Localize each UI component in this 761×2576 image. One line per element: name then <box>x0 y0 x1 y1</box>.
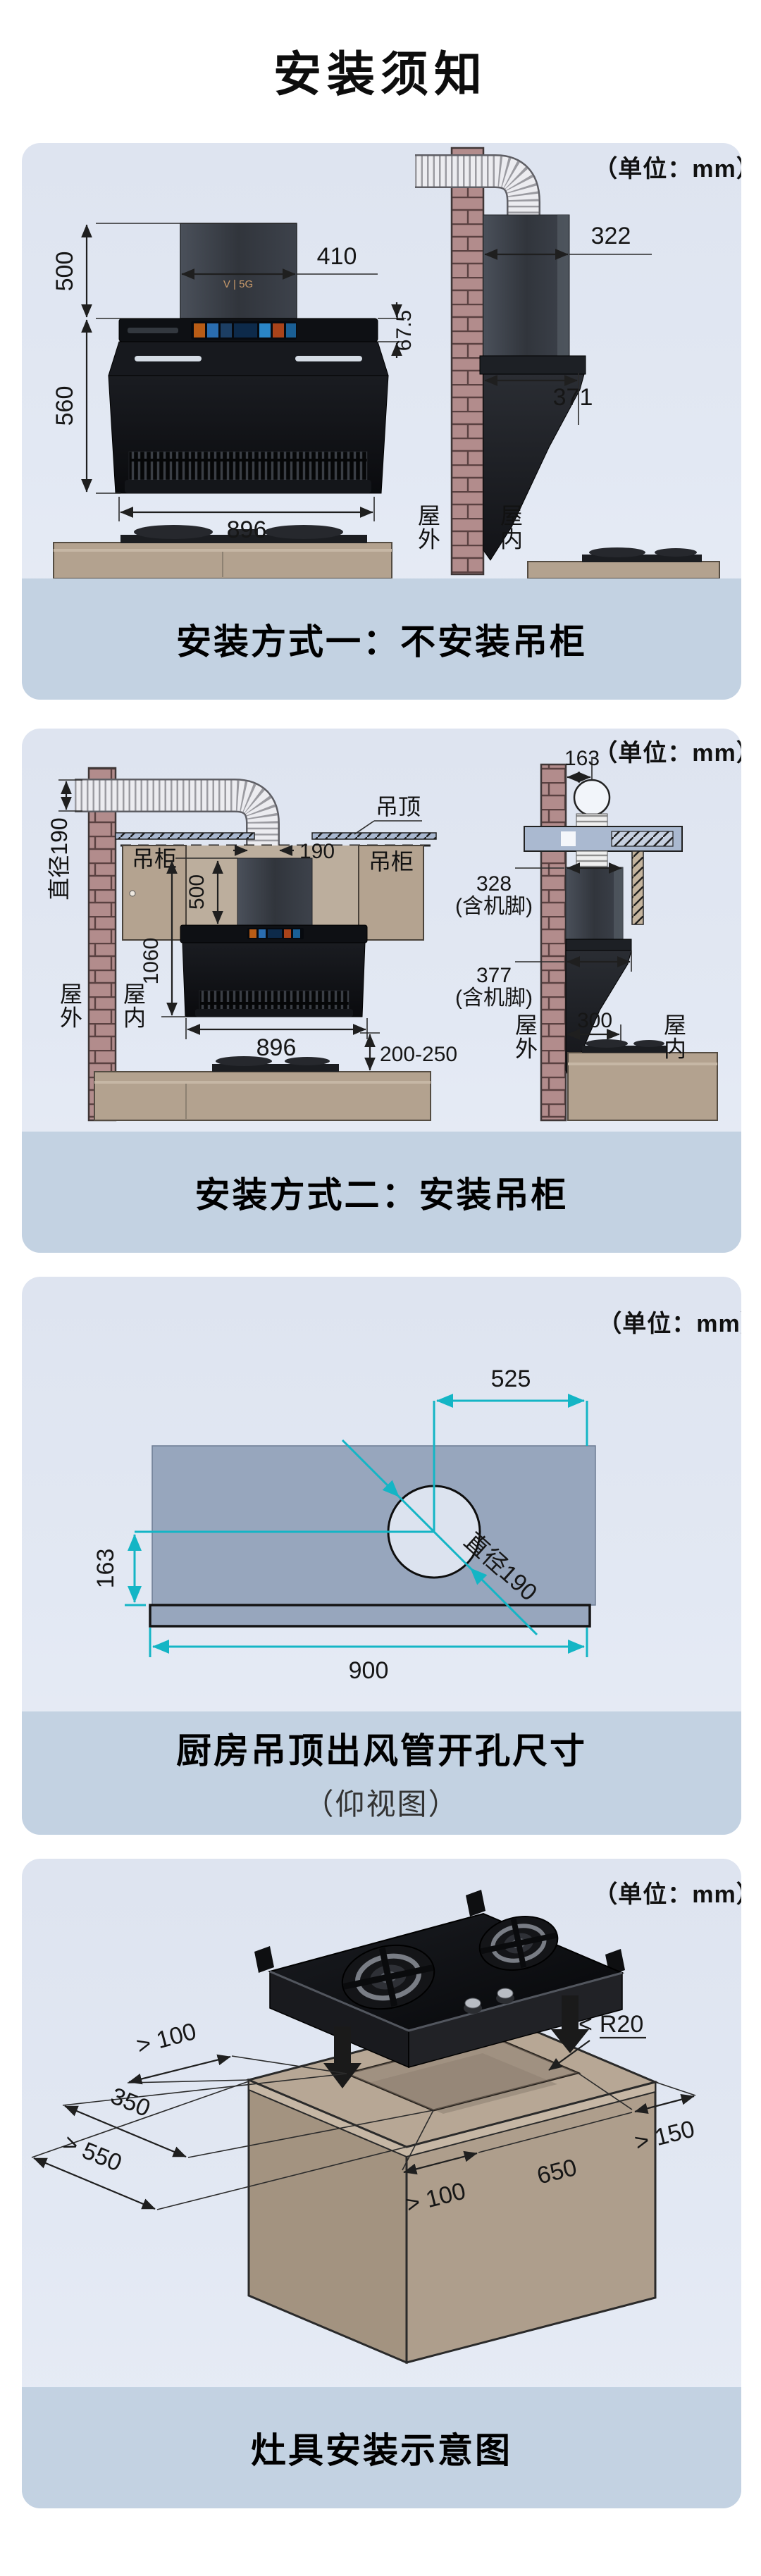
chimney-side <box>483 215 569 356</box>
counter-side <box>528 562 719 578</box>
hood-bottom-lip <box>125 480 371 493</box>
caption-text: 安装方式二：安装吊柜 <box>195 1167 569 1218</box>
dim-500: 500 <box>185 874 209 910</box>
hood-grille-slats <box>199 991 349 1010</box>
display-icon <box>286 323 296 338</box>
panel1-diagram: （单位：mm） V | 5G <box>22 143 741 578</box>
display-clock <box>268 929 282 938</box>
stove-bracket <box>466 1890 485 1916</box>
r20-lt: < <box>579 2011 593 2038</box>
display-icon <box>207 323 218 338</box>
label-outside: 屋外 <box>515 1013 538 1062</box>
display-icon <box>273 323 284 338</box>
dim-371: 371 <box>553 384 593 411</box>
chimney-highlight <box>557 215 569 356</box>
dim-525: 525 <box>491 1366 531 1392</box>
cabinet-knob <box>130 891 135 896</box>
hood-logo: V | 5G <box>223 278 253 290</box>
hood-shelf-side <box>566 939 631 950</box>
dim-r20: <R20 <box>579 2011 643 2038</box>
stove-burner <box>633 1040 664 1047</box>
dim-560: 560 <box>51 386 78 426</box>
duct-corrugated <box>576 814 607 826</box>
stove-burner <box>285 1057 330 1065</box>
dim-322: 322 <box>591 223 631 249</box>
label-outside: 屋外 <box>418 503 440 552</box>
display-icon <box>284 929 291 938</box>
panel-install-no-cabinet: （单位：mm） V | 5G <box>22 143 741 700</box>
hood-grille-slats <box>129 452 367 480</box>
dim-line <box>129 2057 230 2082</box>
slab-hatch-lines <box>612 831 673 846</box>
panel2-diagram: （单位：mm） 直径190 吊顶 吊柜 <box>22 729 741 1132</box>
dim-300: 300 <box>577 1009 612 1032</box>
panel1-caption: 安装方式一：不安装吊柜 <box>22 578 741 700</box>
dim-cutout-depth: 350 <box>107 2083 154 2122</box>
caption-text: 安装方式一：不安装吊柜 <box>176 614 587 664</box>
hood-led-strip <box>295 356 362 361</box>
stove-burner <box>216 1056 272 1066</box>
counter <box>94 1072 431 1120</box>
panel4-caption: 灶具安装示意图 <box>22 2387 741 2508</box>
label-inside: 屋内 <box>500 503 523 552</box>
panel4-diagram: （单位：mm） <box>22 1859 741 2389</box>
ceiling-hatch <box>116 833 254 839</box>
stove-burner <box>586 1039 628 1048</box>
dim-163: 163 <box>92 1549 119 1589</box>
dim-377: 377 <box>476 964 512 987</box>
label-inside: 屋内 <box>123 982 146 1031</box>
duct-circle <box>574 780 610 815</box>
hood-bottom-lip <box>195 1009 353 1017</box>
dim-back-clearance: > 100 <box>134 2018 199 2060</box>
dim-900: 900 <box>349 1657 389 1684</box>
display-icon <box>194 323 205 338</box>
slab-opening <box>561 831 576 846</box>
dim-190: 190 <box>299 840 335 863</box>
ceiling-hatch <box>312 833 436 839</box>
leader-line <box>354 821 374 834</box>
dim-896: 896 <box>227 516 267 543</box>
label-inside: 屋内 <box>664 1013 686 1062</box>
hood-brand-strip <box>128 328 178 333</box>
board-hatch <box>632 851 643 924</box>
dim-377-note: (含机脚) <box>455 986 533 1010</box>
page-title: 安装须知 <box>0 35 761 105</box>
display-icon <box>221 323 232 338</box>
display-icon <box>249 929 256 938</box>
unit-note: （单位：mm） <box>598 1310 741 1337</box>
caption-text: 灶具安装示意图 <box>251 2422 512 2473</box>
stove-burner <box>655 548 697 557</box>
hood-chimney <box>237 858 312 925</box>
panel-stove-install: （单位：mm） <box>22 1859 741 2508</box>
display-icon <box>293 929 300 938</box>
with-cabinet-side-view: 163 328 (含机脚) 377 (含机脚) 3 <box>455 747 717 1120</box>
caption-subtext: （仰视图） <box>304 1781 459 1823</box>
panel2-caption: 安装方式二：安装吊柜 <box>22 1132 741 1253</box>
dim-diameter-190: 直径190 <box>47 817 72 900</box>
dim-328-note: (含机脚) <box>455 895 533 918</box>
label-ceiling: 吊顶 <box>376 794 421 819</box>
r20-value: R20 <box>600 2011 643 2038</box>
label-cabinet-left: 吊柜 <box>132 846 177 872</box>
dim-67-5: 67.5 <box>392 310 416 351</box>
dim-500: 500 <box>51 252 78 292</box>
label-cabinet-right: 吊柜 <box>369 849 414 874</box>
brick-wall <box>541 764 566 1120</box>
hood-chimney <box>180 223 297 318</box>
display-icon <box>259 323 271 338</box>
panel3-diagram: （单位：mm） 525 163 直径190 900 <box>22 1277 741 1711</box>
ext-line <box>655 2082 695 2095</box>
dim-896: 896 <box>256 1034 297 1061</box>
ext-line <box>128 2080 249 2083</box>
display-clock <box>234 323 257 338</box>
panel-ceiling-cutout: （单位：mm） 525 163 直径190 900 厨房吊顶出风管开孔尺寸 （仰… <box>22 1277 741 1835</box>
caption-text: 厨房吊顶出风管开孔尺寸 <box>176 1723 587 1773</box>
stove-burner <box>589 547 645 557</box>
display-icon <box>259 929 266 938</box>
knob-top <box>497 1988 513 1998</box>
unit-note: （单位：mm） <box>593 1881 741 1908</box>
hood-front-view: V | 5G <box>54 223 392 578</box>
dim-1060: 1060 <box>140 938 163 985</box>
stove-side-silhouette <box>582 1039 667 1053</box>
unit-note: （单位：mm） <box>593 155 741 182</box>
stove-bracket <box>254 1946 274 1973</box>
brick-wall <box>89 768 116 1120</box>
hood-side-view: 322 371 屋外 屋内 <box>415 148 719 578</box>
hood-led-strip <box>135 356 202 361</box>
chimney-highlight <box>614 867 623 939</box>
dim-328: 328 <box>476 872 512 896</box>
with-cabinet-front-view: 直径190 吊顶 吊柜 吊柜 <box>47 768 457 1120</box>
knob-top <box>465 1998 481 2008</box>
unit-note: （单位：mm） <box>593 739 741 767</box>
dim-200-250: 200-250 <box>380 1043 457 1066</box>
dim-410: 410 <box>317 243 357 270</box>
hood-display <box>191 321 297 340</box>
brick-wall <box>452 148 483 574</box>
panel3-caption: 厨房吊顶出风管开孔尺寸 （仰视图） <box>22 1711 741 1835</box>
stove-side-silhouette <box>582 547 702 562</box>
hood-display <box>247 928 304 939</box>
duct-corrugated <box>576 851 607 867</box>
label-outside: 屋外 <box>60 982 82 1031</box>
dim-163: 163 <box>564 747 600 770</box>
stove-burner <box>134 525 213 539</box>
panel-install-with-cabinet: （单位：mm） 直径190 吊顶 吊柜 <box>22 729 741 1253</box>
hood-shelf-side <box>480 356 586 374</box>
stove-burner <box>264 525 343 539</box>
